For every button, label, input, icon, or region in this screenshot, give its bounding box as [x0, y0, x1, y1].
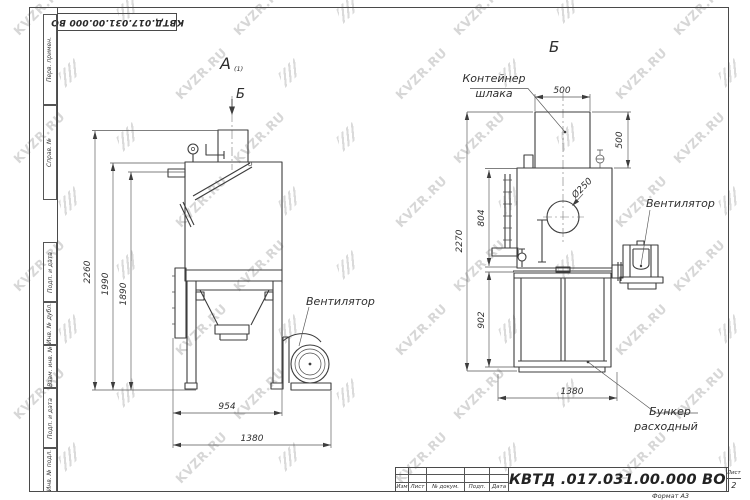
drawing-frame [57, 7, 729, 492]
frame-top-connector [29, 7, 57, 8]
col-izm: Изм [396, 483, 409, 491]
frame-field-vzam-inv: Взам. инв. № [43, 345, 57, 388]
sheet-cell: Лист 2 [726, 468, 741, 491]
title-block: Изм Лист № докум. Подп. Дата КВТД .017.0… [395, 467, 729, 492]
frame-field-podp-data-2: Подп. и дата [43, 388, 57, 448]
frame-field-inv-dubl: Инв. № дубл. [43, 302, 57, 345]
frame-field-inv-podl: Инв. № подл. [43, 448, 57, 492]
title-block-revision-grid: Изм Лист № докум. Подп. Дата [396, 468, 509, 491]
frame-field-podp-data-1: Подп. и дата [43, 242, 57, 302]
paper-edge-line [29, 7, 30, 492]
sheet-label: Лист [727, 468, 741, 479]
col-n-dokum: № докум. [427, 483, 465, 491]
top-designation-stamp: КВТД.017.031.00.000 ВО [57, 13, 177, 31]
col-podp: Подп. [465, 483, 490, 491]
frame-field-sprav-n: Справ. № [43, 105, 57, 200]
top-designation-text: КВТД.017.031.00.000 ВО [51, 17, 184, 27]
document-designation: КВТД .017.031.00.000 ВО [509, 468, 726, 491]
sheet-number: 2 [727, 479, 741, 491]
drawing-sheet: KVZR.RUKVZR.RUKVZR.RUKVZR.RUKVZR.RUKVZR.… [0, 0, 750, 500]
col-data: Дата [490, 483, 509, 491]
frame-field-perv-primen: Перв. примен. [43, 14, 57, 105]
col-list: Лист [409, 483, 427, 491]
format-note: Формат А3 [652, 492, 689, 500]
